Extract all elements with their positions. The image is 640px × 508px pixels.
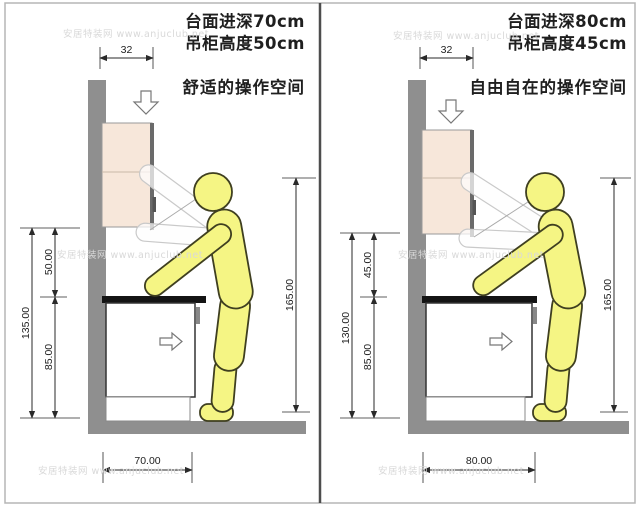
watermark: 安居特装网 www.anjuclub.net	[63, 26, 209, 40]
base-cabinet-right	[426, 303, 532, 397]
watermark: 安居特装网 www.anjuclub.net	[57, 247, 203, 261]
down-arrow-icon-right	[439, 100, 463, 123]
watermark: 安居特装网 www.anjuclub.net	[393, 28, 539, 42]
down-arrow-icon-left	[134, 91, 158, 114]
dim-label-32-left: 32	[121, 44, 133, 56]
right-panel: 32 130.00 45.00 85.00 165.00	[340, 44, 631, 483]
toe-kick-right	[426, 397, 525, 421]
wall-cabinet-right-handle-icon	[473, 200, 477, 215]
toe-kick-left	[106, 397, 190, 421]
person-left-head	[194, 173, 232, 211]
countertop-right	[422, 296, 537, 303]
floor-right	[408, 421, 629, 434]
right-caption: 自由自在的操作空间	[460, 74, 627, 98]
dim-label-50: 50.00	[43, 249, 55, 275]
dim-label-130: 130.00	[340, 312, 352, 344]
dim-label-45: 45.00	[362, 252, 374, 278]
dim-label-85-right: 85.00	[362, 344, 374, 370]
base-cabinet-left	[106, 303, 195, 397]
left-caption: 舒适的操作空间	[168, 74, 305, 98]
dim-label-135: 135.00	[20, 307, 32, 339]
watermark: 安居特装网 www.anjuclub.net	[378, 463, 524, 477]
countertop-left	[102, 296, 206, 303]
watermark: 安居特装网 www.anjuclub.net	[398, 247, 544, 261]
floor-left	[88, 421, 306, 434]
base-cabinet-right-handle-icon	[533, 307, 537, 324]
kitchen-ergonomics-diagram: 32 135.00 50.00 85.00 165.00	[0, 0, 640, 508]
watermark: 安居特装网 www.anjuclub.net	[38, 463, 184, 477]
dim-label-85-left: 85.00	[43, 344, 55, 370]
base-cabinet-left-handle-icon	[196, 307, 200, 324]
person-left-torso	[205, 207, 256, 311]
dim-label-165-left: 165.00	[284, 279, 296, 311]
left-panel: 32 135.00 50.00 85.00 165.00	[20, 44, 316, 483]
dim-label-165-right: 165.00	[602, 279, 614, 311]
wall-cabinet-left-handle-icon	[153, 197, 157, 212]
person-right-head	[526, 173, 564, 211]
dim-label-32-right: 32	[441, 44, 453, 56]
